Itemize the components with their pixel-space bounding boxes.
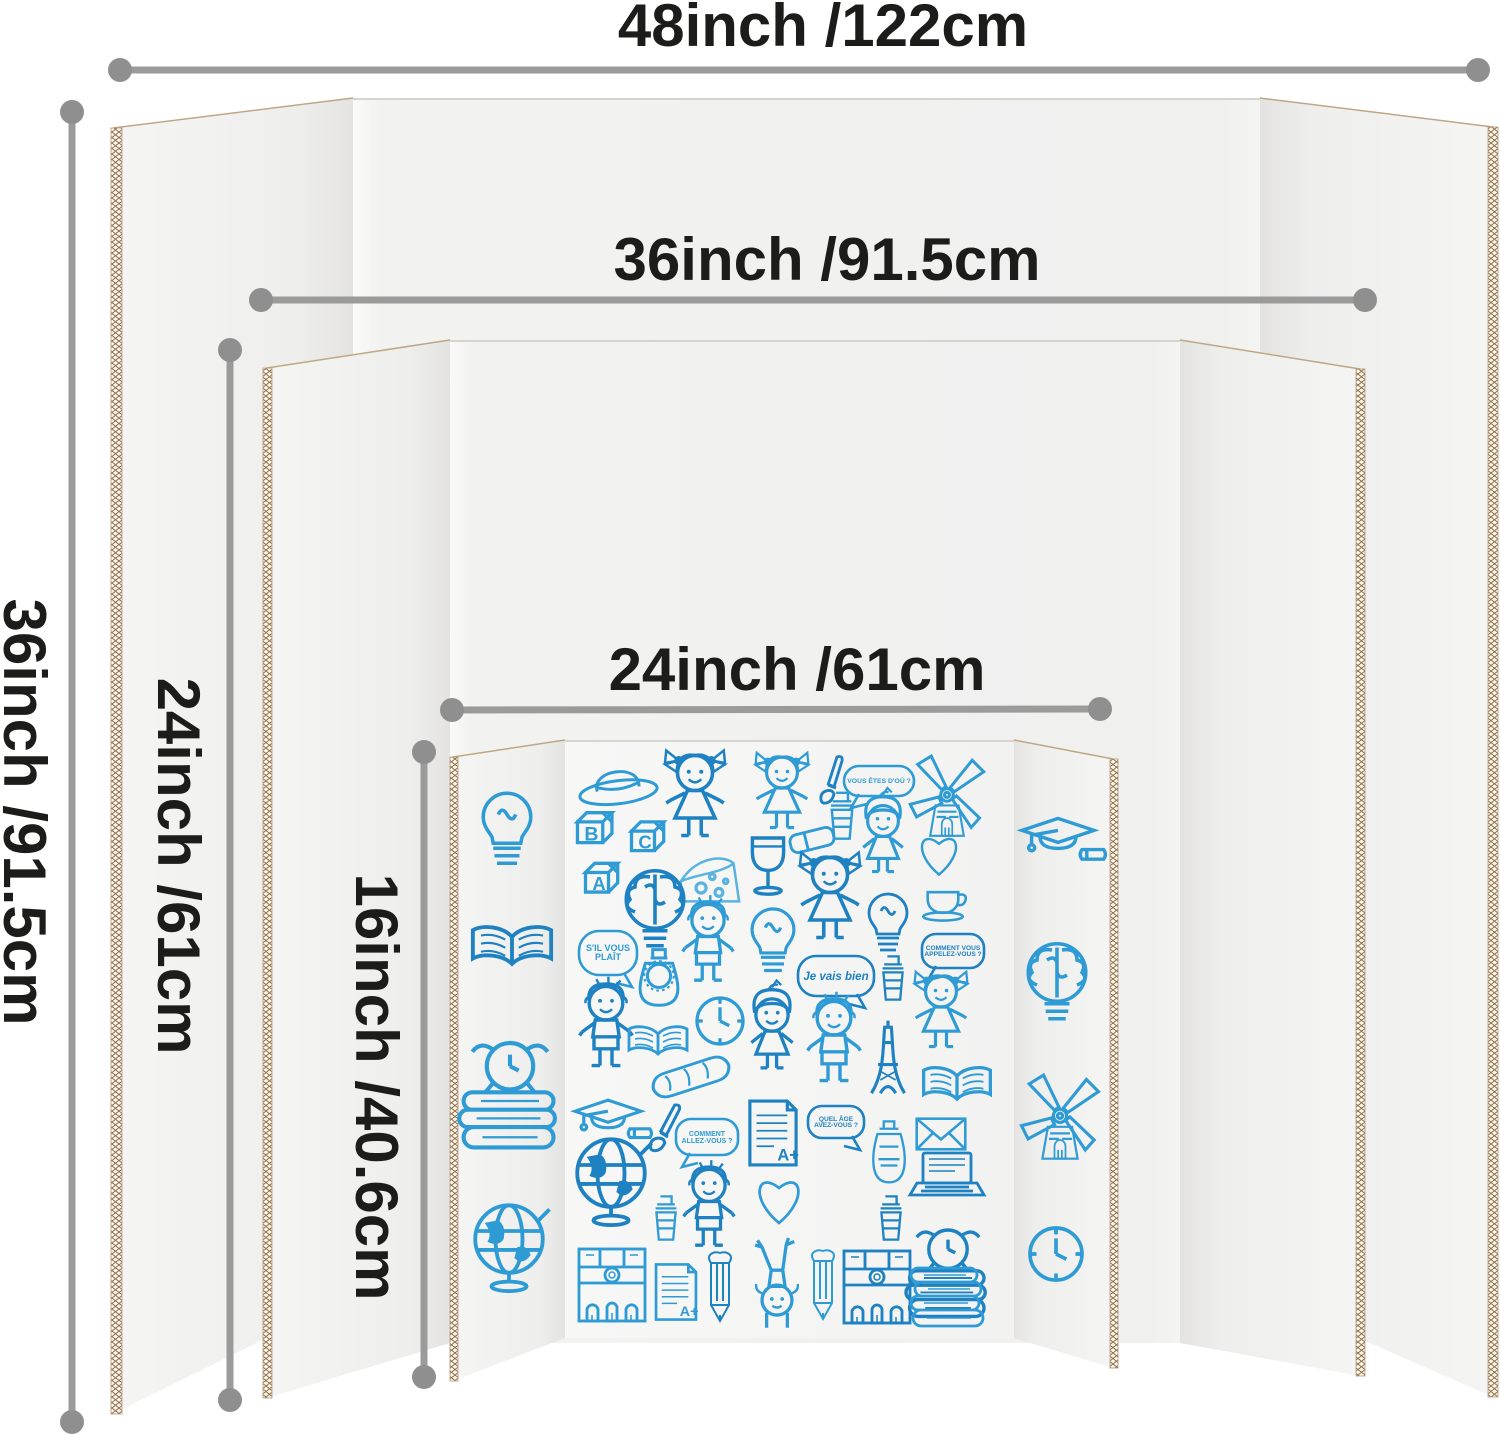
svg-text:ALLEZ-VOUS ?: ALLEZ-VOUS ? xyxy=(682,1138,733,1145)
svg-text:APPELEZ-VOUS ?: APPELEZ-VOUS ? xyxy=(924,951,981,958)
svg-text:24inch /61cm: 24inch /61cm xyxy=(609,636,986,703)
svg-text:PLAÎT: PLAÎT xyxy=(595,951,622,962)
svg-text:36inch /91.5cm: 36inch /91.5cm xyxy=(614,226,1041,293)
svg-text:48inch /122cm: 48inch /122cm xyxy=(618,0,1028,59)
svg-text:VOUS ÊTES D'OÙ ?: VOUS ÊTES D'OÙ ? xyxy=(847,776,911,785)
svg-text:COMMENT: COMMENT xyxy=(689,1131,726,1138)
svg-text:36inch /91.5cm: 36inch /91.5cm xyxy=(0,599,58,1026)
svg-text:Je vais bien: Je vais bien xyxy=(803,971,868,983)
svg-text:24inch /61cm: 24inch /61cm xyxy=(145,678,212,1055)
svg-text:16inch /40.6cm: 16inch /40.6cm xyxy=(343,874,410,1301)
svg-text:AVEZ-VOUS ?: AVEZ-VOUS ? xyxy=(814,1122,858,1129)
